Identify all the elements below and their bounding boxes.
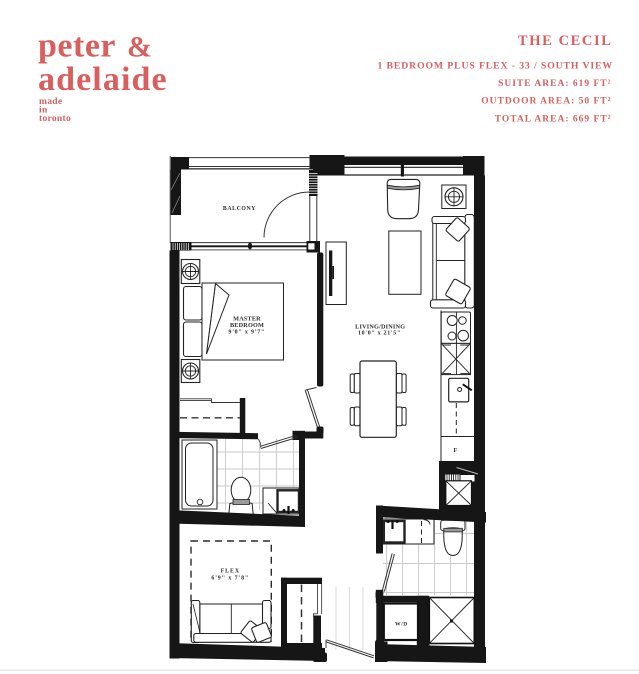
svg-text:9'0" x 9'7": 9'0" x 9'7" xyxy=(228,330,265,336)
svg-text:BEDROOM: BEDROOM xyxy=(230,322,264,329)
svg-text:BALCONY: BALCONY xyxy=(223,206,256,212)
svg-text:W/D: W/D xyxy=(395,621,408,627)
svg-text:OUTDOOR AREA: 50 FT²: OUTDOOR AREA: 50 FT² xyxy=(481,97,611,107)
svg-text:toronto: toronto xyxy=(39,114,71,124)
svg-text:F: F xyxy=(453,448,457,454)
svg-text:6'9" x 7'8": 6'9" x 7'8" xyxy=(211,575,249,581)
svg-text:10'0" x 21'5": 10'0" x 21'5" xyxy=(358,330,401,336)
svg-text:peter &: peter & xyxy=(38,28,153,65)
svg-text:SUITE AREA: 619 FT²: SUITE AREA: 619 FT² xyxy=(498,79,611,89)
svg-text:FLEX: FLEX xyxy=(221,569,240,575)
svg-text:adelaide: adelaide xyxy=(38,61,168,98)
svg-text:TOTAL AREA: 669 FT²: TOTAL AREA: 669 FT² xyxy=(495,114,612,124)
svg-text:THE CECIL: THE CECIL xyxy=(518,33,613,49)
svg-text:1 BEDROOM PLUS FLEX - 33 / SOU: 1 BEDROOM PLUS FLEX - 33 / SOUTH VIEW xyxy=(377,60,613,71)
